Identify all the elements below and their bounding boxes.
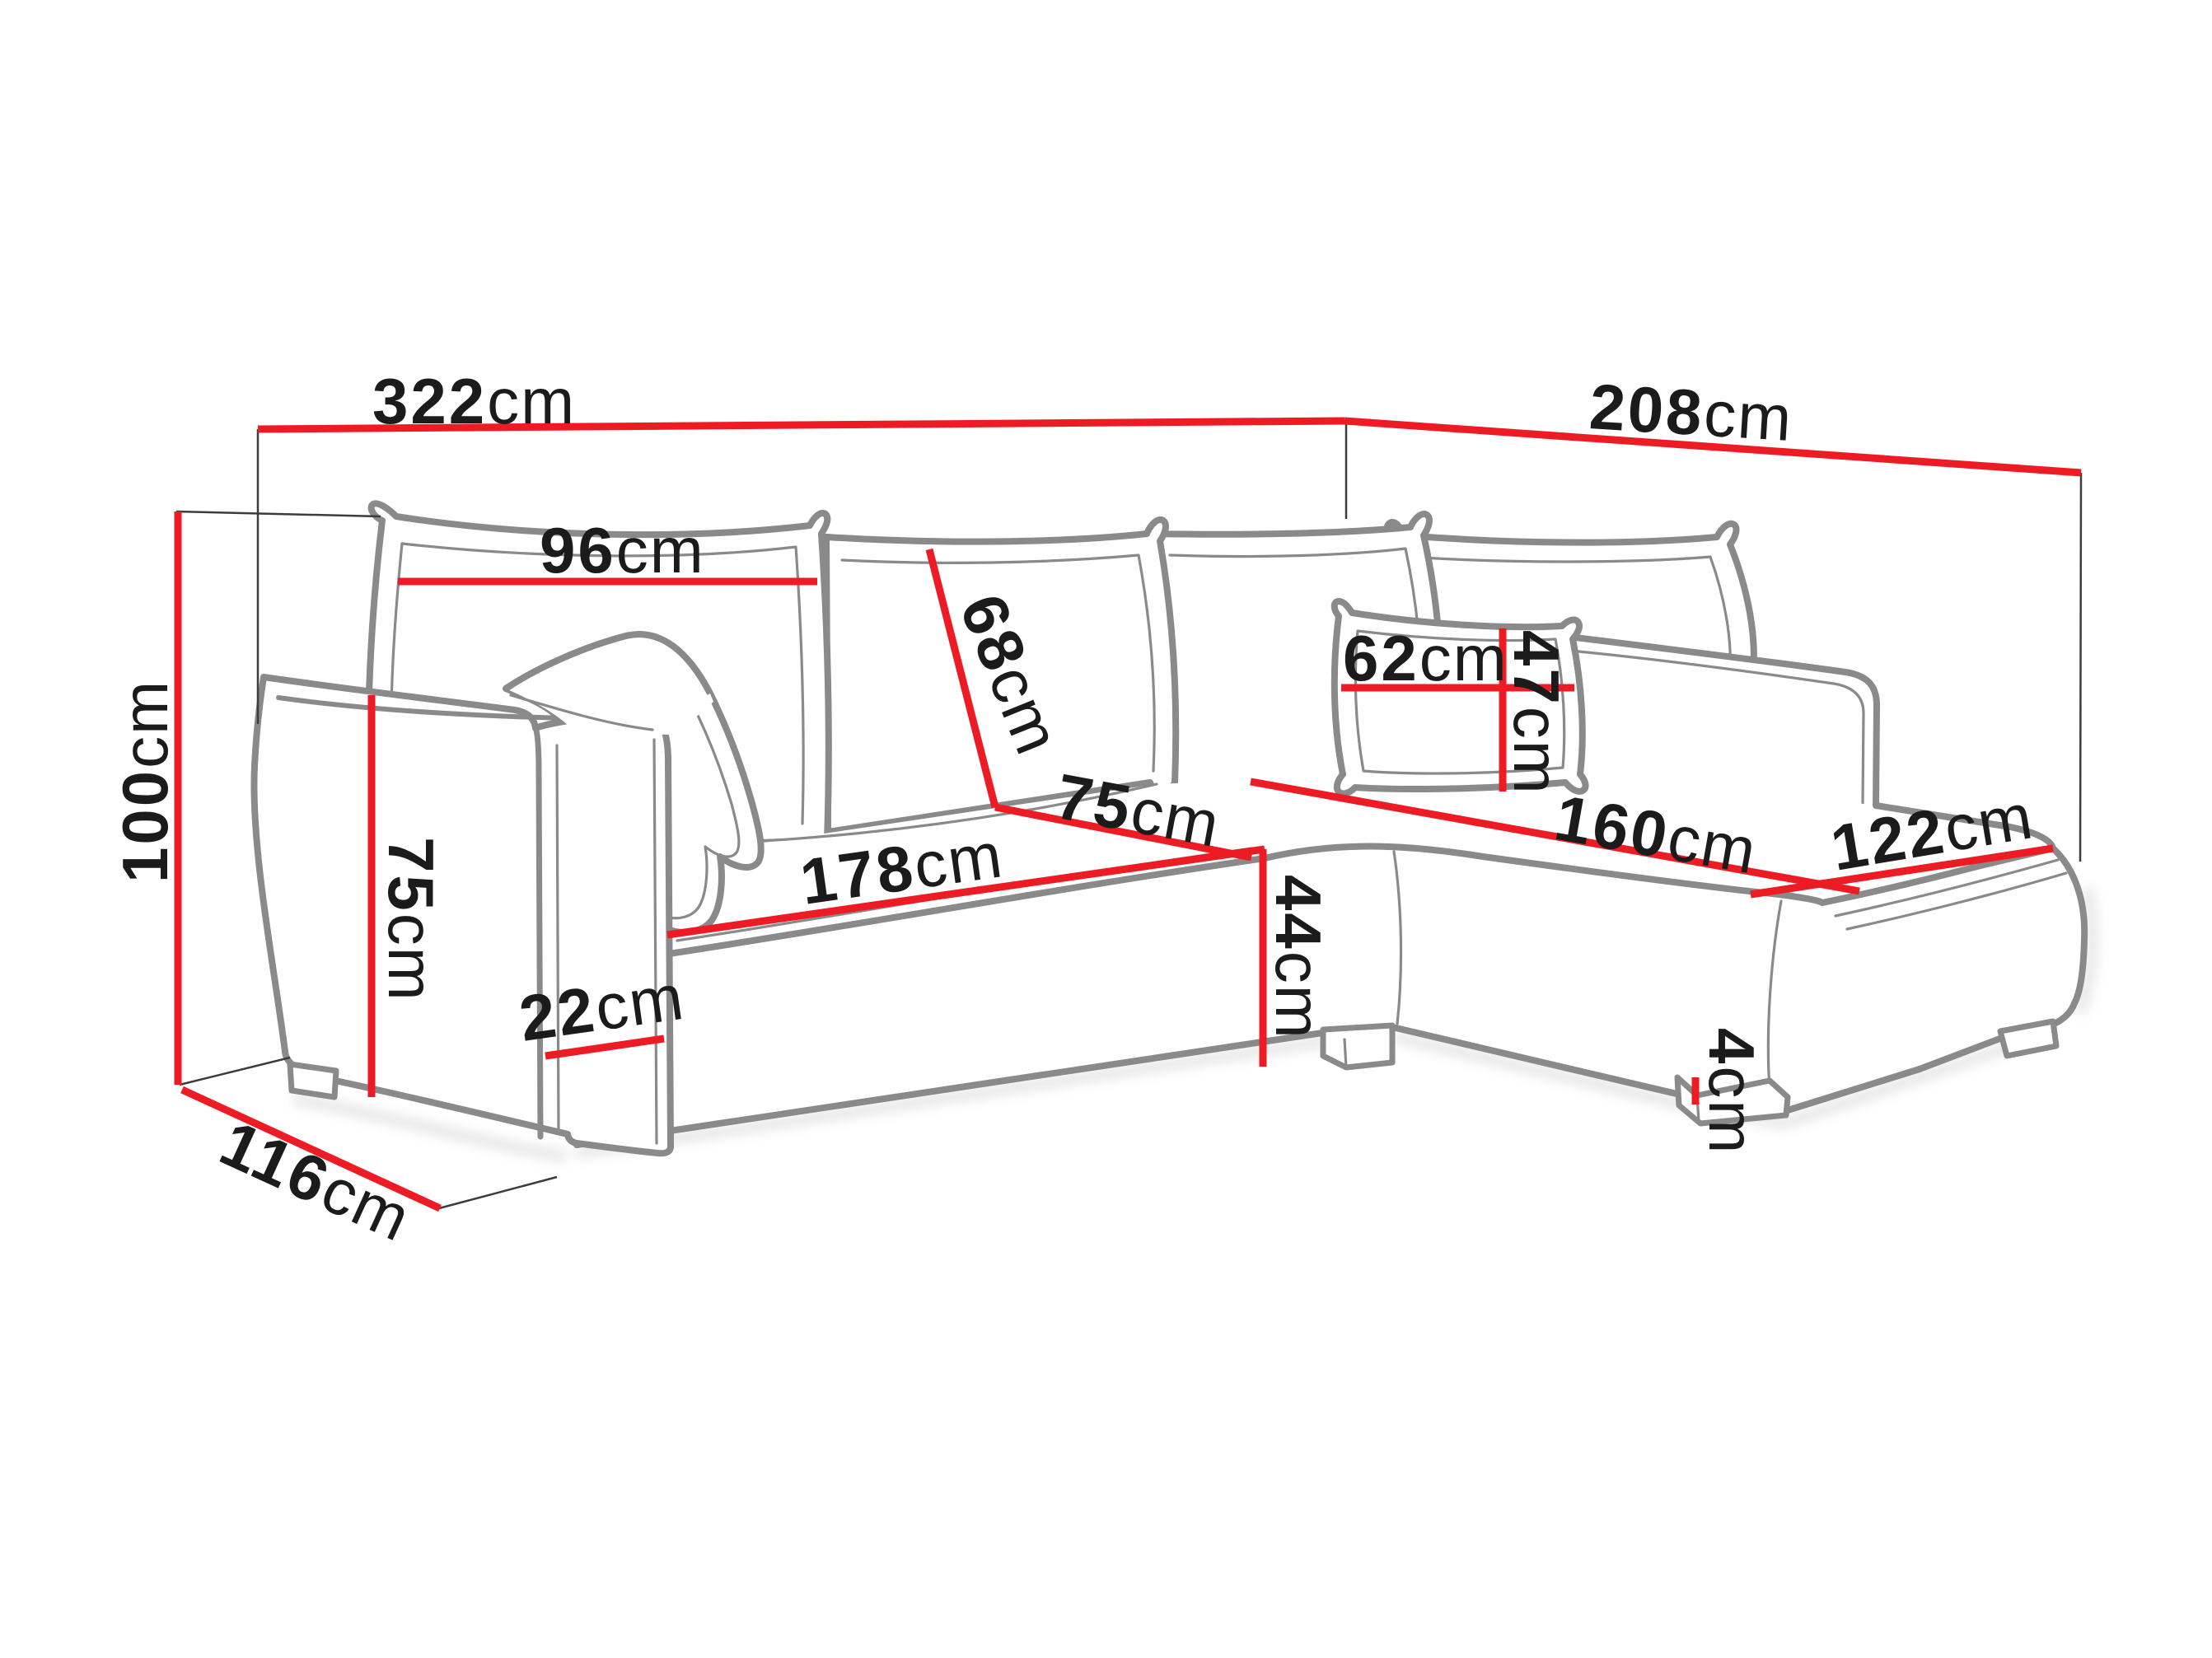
svg-text:208cm: 208cm xyxy=(1588,370,1795,455)
svg-text:62cm: 62cm xyxy=(1343,622,1508,694)
svg-text:44cm: 44cm xyxy=(1262,875,1335,1040)
svg-text:96cm: 96cm xyxy=(540,514,705,586)
svg-text:100cm: 100cm xyxy=(109,680,181,883)
svg-text:4cm: 4cm xyxy=(1695,1028,1768,1155)
svg-text:75cm: 75cm xyxy=(375,837,447,1002)
svg-text:322cm: 322cm xyxy=(372,365,576,437)
svg-text:47cm: 47cm xyxy=(1500,630,1573,796)
